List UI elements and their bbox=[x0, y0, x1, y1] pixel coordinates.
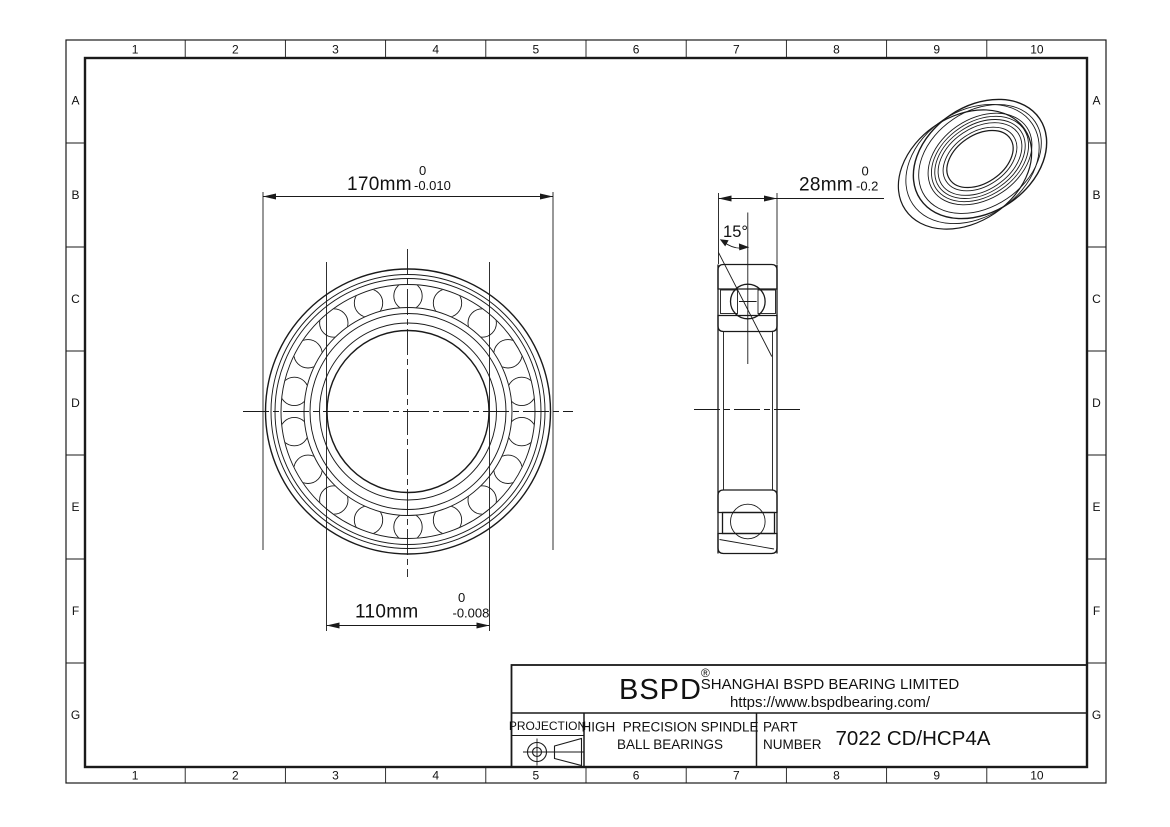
part-number-label-line1: PART bbox=[763, 720, 798, 735]
iso-back-rim-outer bbox=[876, 85, 1055, 253]
grid-column-label: 1 bbox=[132, 769, 139, 783]
isometric-view bbox=[876, 75, 1070, 254]
outer-ring-section-bottom bbox=[718, 534, 777, 554]
bearing-ball bbox=[468, 486, 496, 514]
iso-back-rim-inner bbox=[883, 80, 1062, 248]
iso-outer-ring-edge bbox=[911, 94, 1049, 224]
iso-cage-edge bbox=[920, 103, 1040, 215]
grid-column-label: 9 bbox=[933, 769, 940, 783]
bearing-ball bbox=[294, 455, 322, 483]
grid-row-label: A bbox=[71, 94, 79, 108]
grid-row-label: B bbox=[71, 188, 79, 202]
iso-bore bbox=[936, 119, 1023, 200]
company-website: https://www.bspdbearing.com/ bbox=[730, 694, 931, 711]
grid-row-label: A bbox=[1092, 94, 1100, 108]
part-number-value: 7022 CD/HCP4A bbox=[836, 727, 991, 750]
width-tolerance-lower: -0.2 bbox=[856, 179, 878, 194]
bearing-ball bbox=[394, 513, 422, 541]
bearing-ball bbox=[433, 289, 461, 317]
contact-angle-value: 15° bbox=[723, 223, 748, 241]
grid-column-label: 5 bbox=[533, 769, 540, 783]
product-title-line2: BALL BEARINGS bbox=[617, 737, 723, 752]
grid-column-label: 10 bbox=[1030, 43, 1044, 57]
grid-column-label: 4 bbox=[432, 43, 439, 57]
inner-border bbox=[85, 58, 1087, 767]
product-title-line1: HIGH PRECISION SPINDLE bbox=[581, 720, 758, 735]
grid-column-label: 4 bbox=[432, 769, 439, 783]
grid-row-label: C bbox=[1092, 292, 1101, 306]
od-tolerance-upper: 0 bbox=[419, 163, 426, 178]
first-angle-projection-symbol bbox=[523, 739, 584, 766]
grid-column-label: 3 bbox=[332, 43, 339, 57]
drawing-sheet: 1122334455667788991010AABBCCDDEEFFGG 170… bbox=[0, 0, 1170, 827]
contact-angle-line bbox=[719, 253, 772, 357]
iso-groove-edge bbox=[915, 99, 1044, 220]
bearing-ball bbox=[320, 486, 348, 514]
projection-label: PROJECTION bbox=[509, 719, 586, 733]
cage-section-left bbox=[721, 290, 738, 314]
grid-row-label: D bbox=[71, 396, 80, 410]
grid-column-label: 6 bbox=[633, 43, 640, 57]
engineering-drawing: 1122334455667788991010AABBCCDDEEFFGG 170… bbox=[0, 0, 1170, 827]
od-tolerance-lower: -0.010 bbox=[414, 178, 451, 193]
grid-row-label: F bbox=[72, 604, 79, 618]
part-number-label-line2: NUMBER bbox=[763, 737, 822, 752]
bearing-ball bbox=[494, 455, 522, 483]
grid-labels: 1122334455667788991010AABBCCDDEEFFGG bbox=[71, 43, 1101, 783]
grid-row-label: G bbox=[1092, 708, 1101, 722]
grid-column-label: 9 bbox=[933, 43, 940, 57]
grid-row-label: G bbox=[71, 708, 80, 722]
iso-front-rim bbox=[891, 75, 1070, 243]
grid-column-label: 7 bbox=[733, 43, 740, 57]
grid-row-label: D bbox=[1092, 396, 1101, 410]
shoulder-step-line bbox=[720, 540, 775, 550]
od-dimension-value: 170mm bbox=[347, 174, 412, 195]
grid-column-label: 1 bbox=[132, 43, 139, 57]
grid-column-label: 6 bbox=[633, 769, 640, 783]
grid-row-label: F bbox=[1093, 604, 1100, 618]
bore-dimension-value: 110mm bbox=[355, 602, 418, 623]
bearing-ball bbox=[354, 506, 382, 534]
bearing-ball bbox=[354, 289, 382, 317]
bearing-ball bbox=[320, 309, 348, 337]
side-section-view: 28mm 0 -0.2 15° bbox=[694, 164, 884, 554]
cage-section-right bbox=[758, 290, 776, 314]
company-name: SHANGHAI BSPD BEARING LIMITED bbox=[701, 676, 960, 693]
bore-tolerance-upper: 0 bbox=[458, 590, 465, 605]
grid-column-label: 8 bbox=[833, 769, 840, 783]
grid-row-label: B bbox=[1092, 188, 1100, 202]
grid-row-label: E bbox=[1092, 500, 1100, 514]
grid-column-label: 5 bbox=[533, 43, 540, 57]
bore-tolerance-lower: -0.008 bbox=[453, 606, 490, 621]
grid-row-label: E bbox=[71, 500, 79, 514]
grid-column-label: 7 bbox=[733, 769, 740, 783]
bearing-ball bbox=[494, 340, 522, 368]
grid-column-label: 10 bbox=[1030, 769, 1044, 783]
title-block: BSPD ® SHANGHAI BSPD BEARING LIMITED htt… bbox=[509, 665, 1087, 767]
bearing-ball bbox=[468, 309, 496, 337]
grid-column-label: 2 bbox=[232, 769, 239, 783]
grid-row-label: C bbox=[71, 292, 80, 306]
company-logo: BSPD bbox=[619, 674, 702, 706]
front-view: 170mm 0 -0.010 110mm 0 -0.008 bbox=[243, 163, 573, 631]
grid-column-label: 8 bbox=[833, 43, 840, 57]
width-dimension-value: 28mm bbox=[799, 175, 853, 196]
bearing-ball bbox=[294, 340, 322, 368]
bearing-ball bbox=[394, 282, 422, 310]
grid-column-label: 3 bbox=[332, 769, 339, 783]
bearing-ball bbox=[433, 506, 461, 534]
width-tolerance-upper: 0 bbox=[862, 164, 869, 179]
inner-ring-section-bottom bbox=[718, 490, 777, 513]
iso-bore-chamfer bbox=[931, 114, 1028, 204]
grid-column-label: 2 bbox=[232, 43, 239, 57]
